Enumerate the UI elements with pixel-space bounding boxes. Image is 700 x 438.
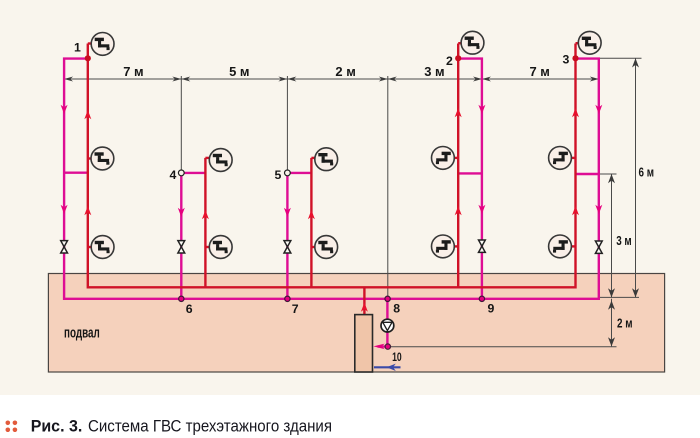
svg-text:4: 4	[169, 168, 176, 182]
svg-text:7 м: 7 м	[123, 64, 143, 79]
svg-text:5: 5	[274, 168, 281, 182]
svg-text:Рис. 3.: Рис. 3.	[31, 417, 83, 435]
svg-text:3 м: 3 м	[616, 233, 632, 248]
svg-text:2: 2	[446, 54, 453, 68]
svg-text:3 м: 3 м	[424, 64, 444, 79]
svg-text:8: 8	[393, 302, 400, 316]
svg-text:6: 6	[186, 302, 193, 316]
svg-text:3: 3	[562, 52, 569, 66]
svg-text:6 м: 6 м	[639, 164, 655, 179]
svg-text:Система ГВС трехэтажного здани: Система ГВС трехэтажного здания	[88, 417, 332, 435]
svg-text:10: 10	[392, 350, 402, 364]
svg-text:2 м: 2 м	[335, 64, 355, 79]
svg-text:9: 9	[488, 302, 495, 316]
svg-text:5 м: 5 м	[229, 64, 249, 79]
svg-text:7 м: 7 м	[530, 64, 550, 79]
svg-text:7: 7	[292, 302, 299, 316]
svg-text:1: 1	[74, 41, 81, 55]
svg-text:2 м: 2 м	[617, 316, 633, 331]
svg-text:подвал: подвал	[64, 325, 100, 342]
